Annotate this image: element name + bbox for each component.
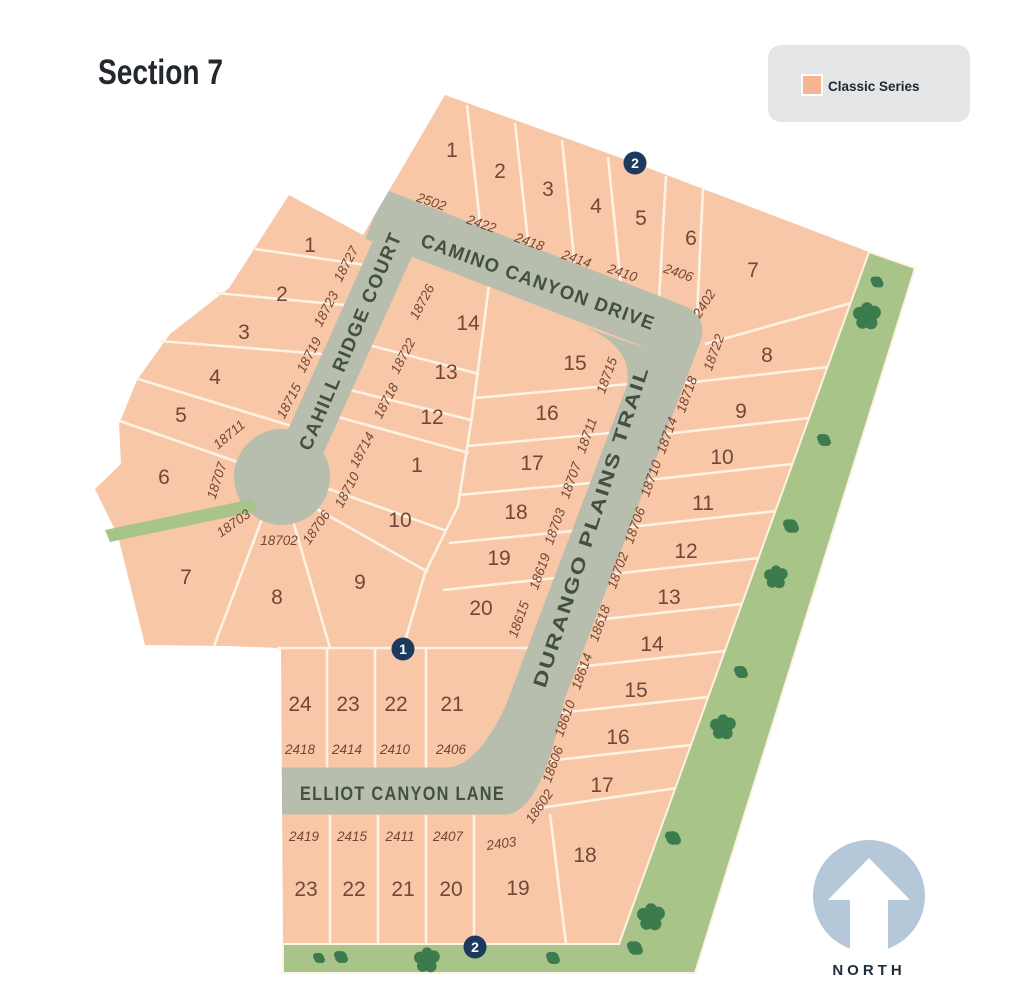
svg-text:4: 4 (209, 366, 221, 389)
svg-text:2: 2 (494, 160, 506, 183)
svg-text:1: 1 (411, 454, 423, 477)
svg-text:5: 5 (175, 404, 187, 427)
svg-text:23: 23 (294, 878, 317, 901)
svg-text:6: 6 (158, 466, 170, 489)
svg-text:2415: 2415 (336, 829, 368, 844)
svg-text:16: 16 (535, 402, 558, 425)
svg-text:3: 3 (238, 321, 250, 344)
svg-text:2414: 2414 (331, 742, 362, 757)
svg-text:Classic Series: Classic Series (828, 79, 920, 94)
svg-text:10: 10 (388, 509, 411, 532)
svg-text:Section 7: Section 7 (98, 53, 223, 92)
svg-text:1: 1 (446, 139, 458, 162)
svg-text:5: 5 (635, 207, 647, 230)
svg-text:4: 4 (590, 195, 602, 218)
svg-text:18: 18 (504, 501, 527, 524)
svg-text:22: 22 (342, 878, 365, 901)
svg-text:16: 16 (606, 726, 629, 749)
svg-text:12: 12 (420, 406, 443, 429)
svg-text:18702: 18702 (260, 533, 298, 548)
svg-text:8: 8 (761, 344, 773, 367)
svg-text:8: 8 (271, 586, 283, 609)
svg-text:19: 19 (506, 877, 529, 900)
svg-text:2410: 2410 (379, 742, 411, 757)
svg-text:2419: 2419 (288, 829, 320, 844)
svg-text:20: 20 (439, 878, 462, 901)
svg-text:11: 11 (692, 492, 714, 515)
svg-text:6: 6 (685, 227, 697, 250)
svg-text:21: 21 (391, 878, 414, 901)
svg-text:2407: 2407 (432, 829, 464, 844)
svg-text:14: 14 (640, 633, 664, 656)
svg-text:15: 15 (563, 352, 586, 375)
svg-text:22: 22 (384, 693, 407, 716)
svg-text:23: 23 (336, 693, 359, 716)
svg-text:NORTH: NORTH (832, 962, 905, 979)
svg-text:19: 19 (487, 547, 510, 570)
svg-text:17: 17 (590, 774, 613, 797)
svg-text:2: 2 (471, 939, 479, 955)
svg-text:18: 18 (573, 844, 596, 867)
svg-text:14: 14 (456, 312, 480, 335)
svg-text:10: 10 (710, 446, 733, 469)
svg-text:2418: 2418 (284, 742, 316, 757)
svg-text:2406: 2406 (435, 742, 467, 757)
svg-text:12: 12 (674, 540, 697, 563)
svg-text:24: 24 (288, 693, 312, 716)
svg-text:ELLIOT CANYON LANE: ELLIOT CANYON LANE (300, 784, 505, 805)
svg-text:2: 2 (276, 283, 288, 306)
svg-text:1: 1 (399, 641, 407, 657)
svg-text:9: 9 (354, 571, 366, 594)
svg-text:15: 15 (624, 679, 647, 702)
svg-text:1: 1 (304, 234, 316, 257)
svg-text:2411: 2411 (384, 829, 414, 844)
svg-text:21: 21 (440, 693, 463, 716)
svg-text:20: 20 (469, 597, 492, 620)
svg-text:17: 17 (520, 452, 543, 475)
svg-text:3: 3 (542, 178, 554, 201)
svg-text:2: 2 (631, 155, 639, 171)
svg-text:7: 7 (180, 566, 192, 589)
svg-text:7: 7 (747, 259, 759, 282)
svg-text:9: 9 (735, 400, 747, 423)
svg-text:13: 13 (434, 361, 457, 384)
svg-text:13: 13 (657, 586, 680, 609)
